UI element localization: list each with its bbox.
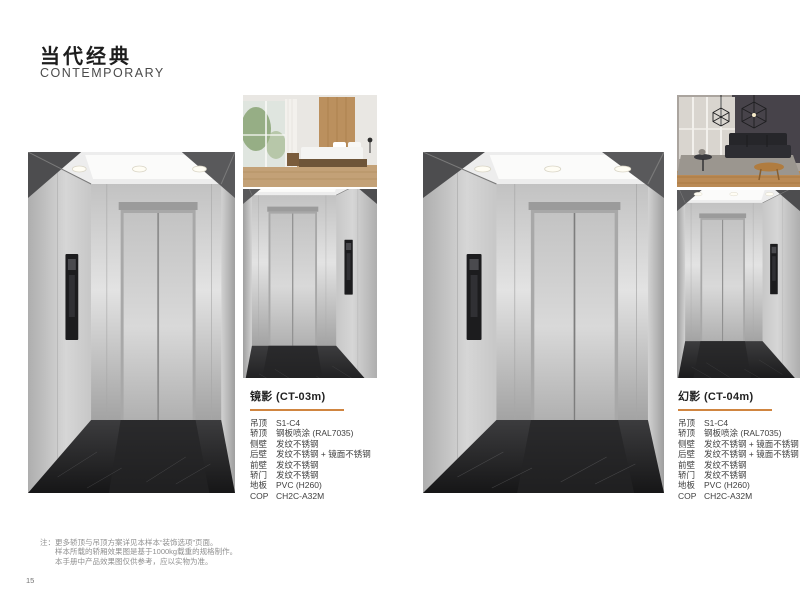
footnote: 注：更多轿顶与吊顶方案详见本样本“装饰选项”页面。 样本所载的轿厢效果图是基于1… [40, 538, 237, 566]
page-title: 当代经典 [40, 40, 132, 69]
spec-row: 前壁发纹不锈钢 [250, 460, 382, 470]
spec-row: 侧壁发纹不锈钢 + 镜面不锈钢 [678, 439, 800, 449]
spec-label: 轿顶 [250, 428, 276, 438]
accent-rule [678, 409, 772, 411]
footnote-line: 注：更多轿顶与吊顶方案详见本样本“装饰选项”页面。 [40, 538, 237, 547]
spec-label: 轿门 [250, 470, 276, 480]
spec-value: S1-C4 [704, 418, 800, 428]
spec-row: 地板PVC (H260) [250, 480, 382, 490]
spec-value: 发纹不锈钢 [276, 460, 382, 470]
spec-value: PVC (H260) [276, 480, 382, 490]
spec-row: 吊顶S1-C4 [250, 418, 382, 428]
spec-row: 后壁发纹不锈钢 + 镜面不锈钢 [250, 449, 382, 459]
spec-label: 后壁 [250, 449, 276, 459]
spec-row: 后壁发纹不锈钢 + 镜面不锈钢 [678, 449, 800, 459]
accent-rule [250, 409, 344, 411]
spec-value: CH2C-A32M [276, 491, 382, 501]
spec-row: 前壁发纹不锈钢 [678, 460, 800, 470]
spec-label: 吊顶 [678, 418, 704, 428]
spec-row: 轿顶钢板喷涂 (RAL7035) [250, 428, 382, 438]
spec-label: 后壁 [678, 449, 704, 459]
spec-row: 轿门发纹不锈钢 [678, 470, 800, 480]
spec-label: 轿门 [678, 470, 704, 480]
spec-value: 发纹不锈钢 + 镜面不锈钢 [276, 449, 382, 459]
spec-row: 侧壁发纹不锈钢 [250, 439, 382, 449]
spec-label: 前壁 [678, 460, 704, 470]
spec-rows: 吊顶S1-C4 轿顶钢板喷涂 (RAL7035) 侧壁发纹不锈钢 + 镜面不锈钢… [678, 418, 800, 501]
spec-value: 钢板喷涂 (RAL7035) [276, 428, 382, 438]
spec-block-ct04m: 幻影 (CT-04m) 吊顶S1-C4 轿顶钢板喷涂 (RAL7035) 侧壁发… [678, 388, 800, 501]
spec-row: 轿门发纹不锈钢 [250, 470, 382, 480]
product-name: 镜影 (CT-03m) [250, 388, 382, 404]
spec-row: 轿顶钢板喷涂 (RAL7035) [678, 428, 800, 438]
spec-value: 钢板喷涂 (RAL7035) [704, 428, 800, 438]
living-room-photo [677, 95, 800, 187]
catalog-page: 当代经典 CONTEMPORARY [0, 0, 800, 600]
spec-label: COP [678, 491, 704, 501]
spec-row: 吊顶S1-C4 [678, 418, 800, 428]
spec-value: 发纹不锈钢 + 镜面不锈钢 [704, 439, 800, 449]
footnote-line: 样本所载的轿厢效果图是基于1000kg载重的规格制作。 [40, 547, 237, 556]
spec-value: CH2C-A32M [704, 491, 800, 501]
elevator-detail-photo-ct03m [243, 189, 377, 378]
elevator-render-ct04m [423, 152, 664, 493]
spec-value: PVC (H260) [704, 480, 800, 490]
footnote-line: 本手册中产品效果图仅供参考，应以实物为准。 [40, 557, 237, 566]
spec-label: 轿顶 [678, 428, 704, 438]
spec-row: COPCH2C-A32M [678, 491, 800, 501]
spec-label: 侧壁 [678, 439, 704, 449]
spec-label: 前壁 [250, 460, 276, 470]
spec-value: 发纹不锈钢 + 镜面不锈钢 [704, 449, 800, 459]
bedroom-photo [243, 95, 377, 187]
spec-row: COPCH2C-A32M [250, 491, 382, 501]
spec-row: 地板PVC (H260) [678, 480, 800, 490]
spec-value: 发纹不锈钢 [704, 470, 800, 480]
spec-label: 侧壁 [250, 439, 276, 449]
spec-label: 地板 [678, 480, 704, 490]
page-number: 15 [26, 576, 34, 585]
spec-label: COP [250, 491, 276, 501]
elevator-render-ct03m [28, 152, 235, 493]
product-name: 幻影 (CT-04m) [678, 388, 800, 404]
page-subtitle: CONTEMPORARY [40, 66, 165, 80]
spec-value: S1-C4 [276, 418, 382, 428]
spec-value: 发纹不锈钢 [276, 470, 382, 480]
spec-label: 地板 [250, 480, 276, 490]
spec-rows: 吊顶S1-C4 轿顶钢板喷涂 (RAL7035) 侧壁发纹不锈钢 后壁发纹不锈钢… [250, 418, 382, 501]
spec-value: 发纹不锈钢 [704, 460, 800, 470]
elevator-detail-photo-ct04m [677, 190, 800, 378]
spec-value: 发纹不锈钢 [276, 439, 382, 449]
spec-block-ct03m: 镜影 (CT-03m) 吊顶S1-C4 轿顶钢板喷涂 (RAL7035) 侧壁发… [250, 388, 382, 501]
spec-label: 吊顶 [250, 418, 276, 428]
